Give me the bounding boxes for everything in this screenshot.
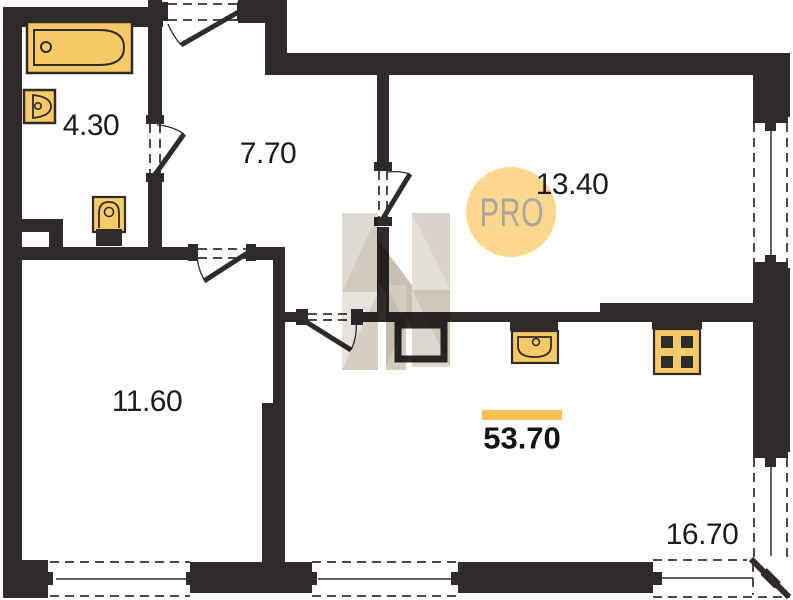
washbasin-icon	[24, 90, 55, 123]
room-area-label-hallway: 7.70	[240, 139, 296, 169]
room-area-label-living: 16.70	[666, 520, 739, 550]
floor-plan: 4.30 7.70 13.40 11.60 16.70 53.70 PRO	[0, 0, 793, 600]
kitchen-sink-icon	[510, 322, 558, 363]
toilet-icon	[93, 197, 125, 246]
total-area-underline	[482, 410, 562, 420]
watermark-logo	[342, 213, 450, 370]
room-area-label-bathroom: 4.30	[63, 111, 119, 141]
room-area-label-bedroom: 11.60	[112, 387, 182, 417]
room-area-label-kitchen: 13.40	[536, 170, 609, 200]
total-area-label: 53.70	[483, 423, 561, 454]
stove-icon	[652, 320, 702, 374]
floor-plan-drawing	[0, 0, 793, 600]
logo-text: PRO	[480, 193, 545, 233]
bathtub-icon	[27, 22, 132, 73]
